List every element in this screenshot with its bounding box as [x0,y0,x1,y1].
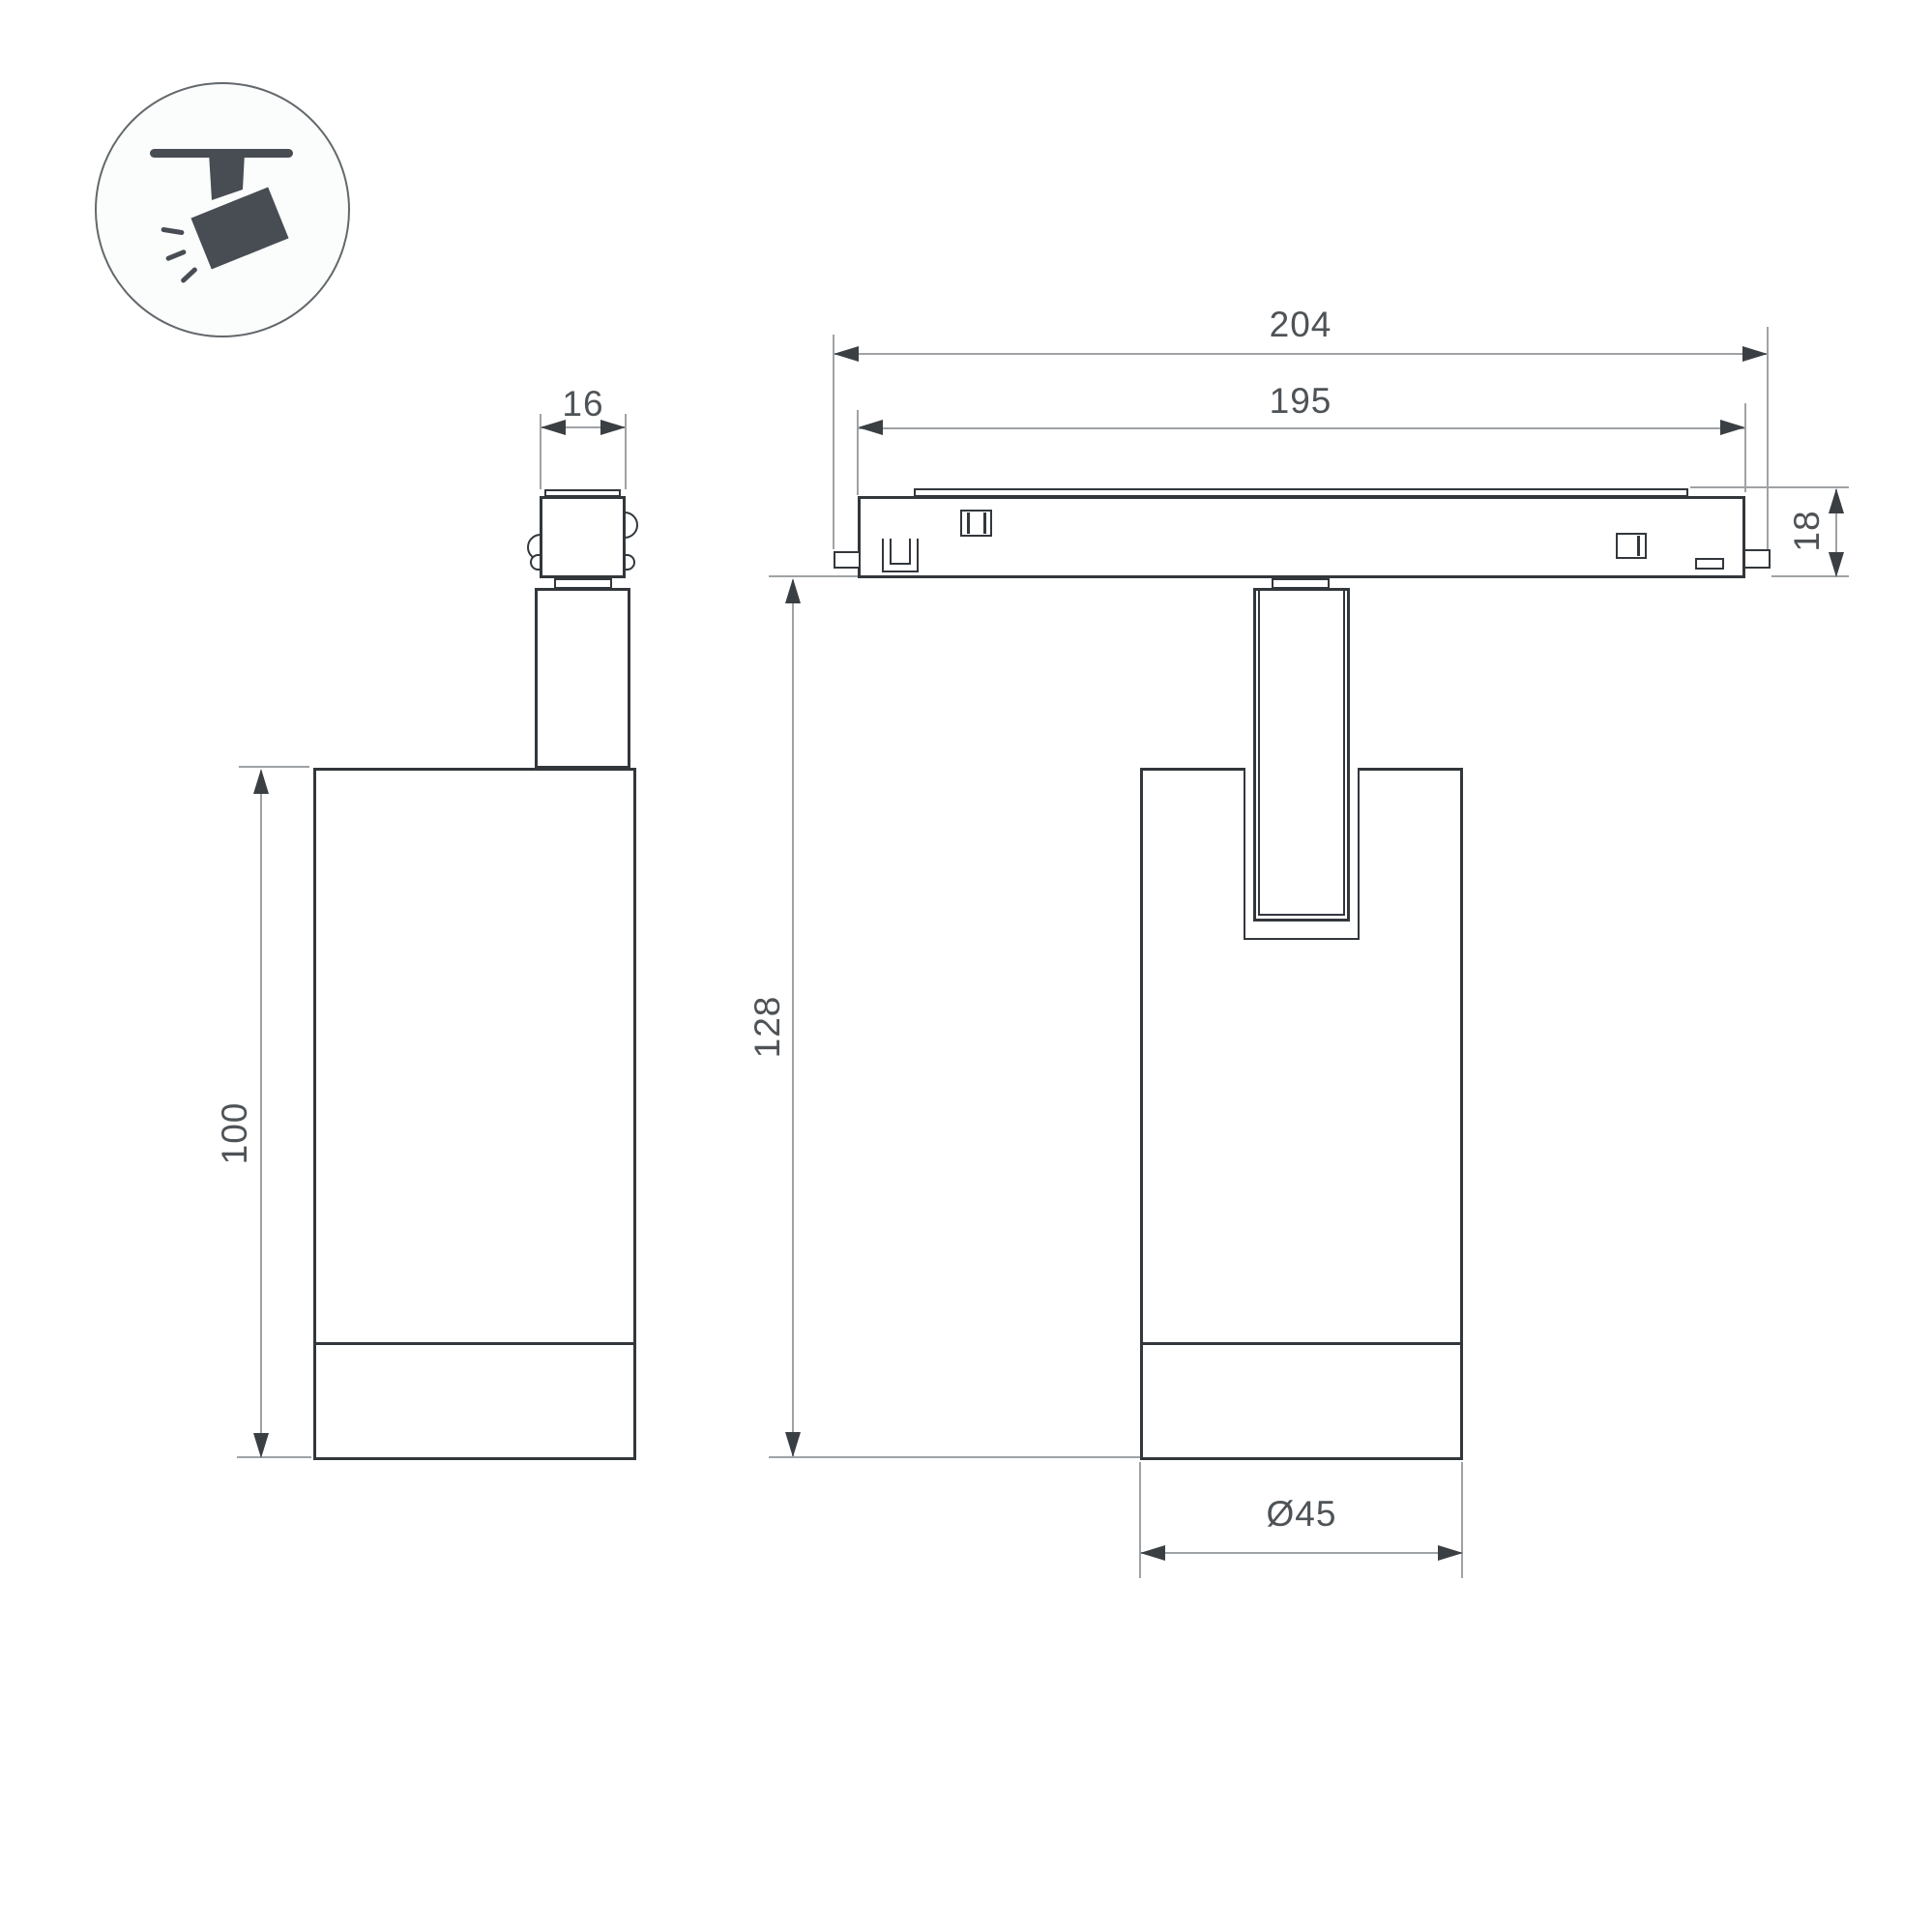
arrowhead [1720,420,1745,435]
dim-line-204 [834,353,1768,355]
extension-line [1139,1462,1141,1578]
dim-label-body-height: 100 [216,1066,254,1201]
dim-label-overall-height: 128 [748,969,787,1085]
track-clip-inner [890,539,911,565]
track-component-line [983,512,986,534]
arrowhead [1140,1545,1165,1561]
track-component-line [1637,536,1640,556]
dim-label-body-diameter: Ø45 [1205,1495,1398,1534]
extension-line [1744,403,1746,492]
extension-line [540,414,542,489]
arrowhead [1742,346,1768,362]
extension-line [769,1456,1142,1458]
extension-line [237,1456,311,1458]
arrowhead [1438,1545,1463,1561]
track-end-tab [834,551,861,569]
extension-line [833,335,834,549]
stem-collar-side [554,578,612,589]
arrowhead [785,578,801,603]
track-component [960,510,992,537]
arrowhead [541,420,566,435]
arrowhead [1829,552,1844,577]
extension-line [625,414,627,489]
arrowhead [834,346,859,362]
arrowhead [1829,488,1844,513]
dimension-drawing-canvas: 16 100 204 195 [0,0,1932,1932]
dim-line-100 [260,771,262,1455]
arrowhead [600,420,626,435]
arrowhead [785,1432,801,1457]
dim-label-track-height: 18 [1788,492,1827,570]
track-adapter-side [540,496,626,578]
lamp-body-side [313,768,636,1460]
extension-line [1690,486,1849,488]
dim-label-track-body: 195 [1204,382,1397,421]
dim-line-45 [1140,1552,1463,1554]
arrowhead [253,1433,269,1458]
extension-line [1461,1462,1463,1578]
arrowhead [253,769,269,794]
dim-label-adapter-width: 16 [525,385,641,424]
track-component-line [967,512,970,534]
track-spotlight-icon [93,80,352,339]
extension-line [239,766,309,768]
track-slot [1695,558,1724,570]
lens-ring-line [316,1342,633,1345]
stem-front-inner [1258,588,1345,916]
track-component [1616,533,1647,559]
dim-line-195 [858,427,1745,429]
track-end-tab [1743,549,1771,569]
lens-ring-line [1143,1342,1460,1345]
extension-line [769,575,858,577]
extension-line [1767,327,1769,549]
arrowhead [858,420,883,435]
track-profile [858,496,1745,578]
extension-line [857,410,859,495]
dim-label-track-total: 204 [1204,306,1397,344]
dim-line-128 [792,580,794,1456]
stem-side [535,588,630,769]
